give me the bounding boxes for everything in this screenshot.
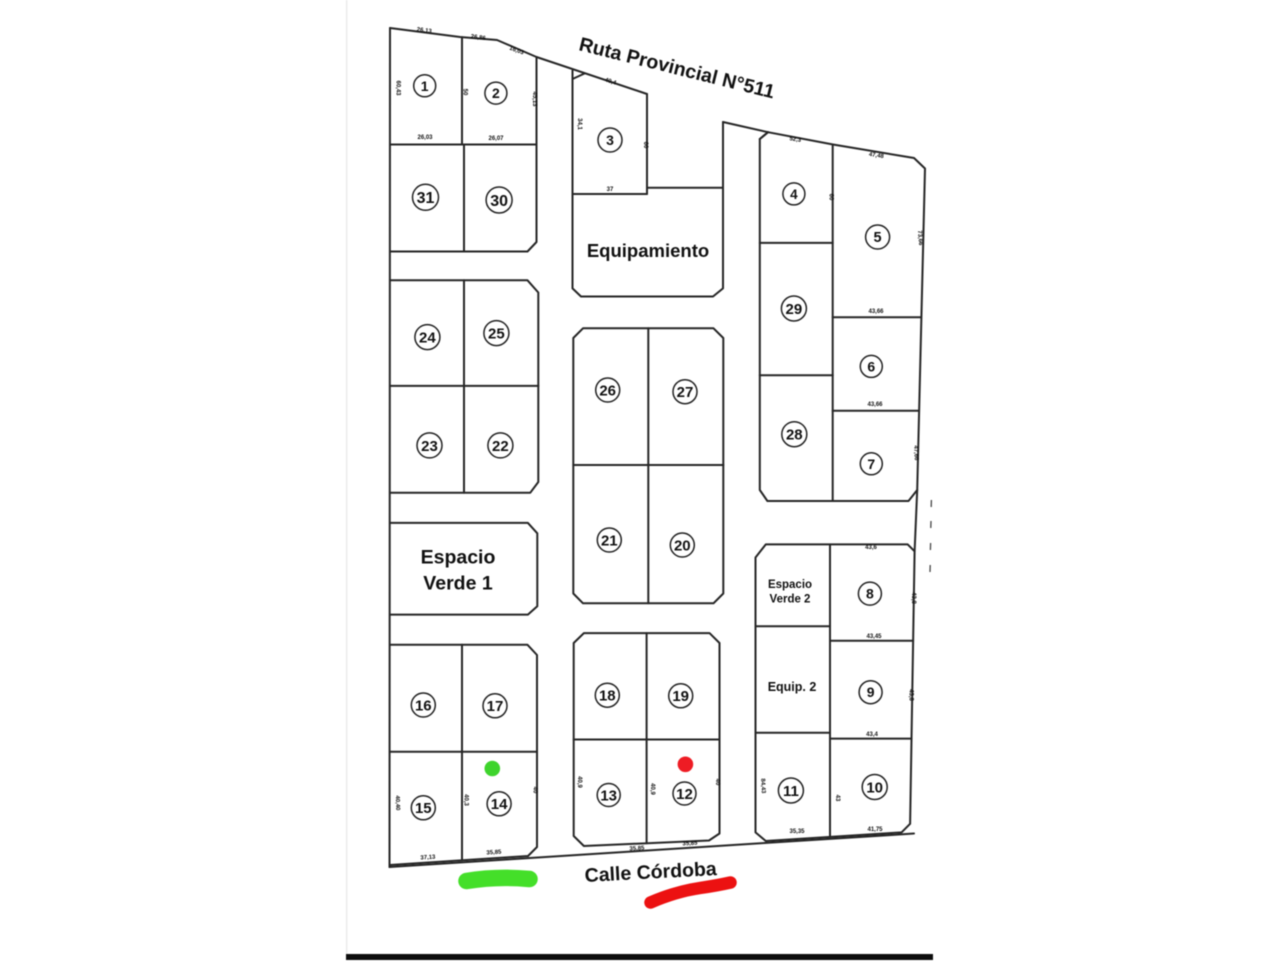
svg-text:60: 60 xyxy=(642,142,648,149)
svg-text:34,1: 34,1 xyxy=(576,118,582,130)
svg-text:8: 8 xyxy=(866,586,874,602)
svg-text:35,85: 35,85 xyxy=(486,849,502,856)
svg-text:47,66: 47,66 xyxy=(912,445,919,461)
svg-text:4: 4 xyxy=(790,187,798,202)
svg-text:40,40: 40,40 xyxy=(394,795,401,811)
svg-text:60,43: 60,43 xyxy=(395,80,401,96)
svg-text:40,9: 40,9 xyxy=(649,783,655,795)
svg-text:24: 24 xyxy=(419,330,436,347)
svg-text:43,8: 43,8 xyxy=(908,689,914,701)
svg-text:29: 29 xyxy=(786,301,803,318)
svg-text:6: 6 xyxy=(867,358,875,374)
svg-text:37: 37 xyxy=(607,187,614,193)
svg-text:26,03: 26,03 xyxy=(417,135,433,141)
svg-text:21: 21 xyxy=(601,532,618,549)
svg-text:50: 50 xyxy=(462,89,468,96)
svg-text:3: 3 xyxy=(606,132,614,148)
svg-text:5: 5 xyxy=(874,230,882,246)
svg-text:35,85: 35,85 xyxy=(629,846,645,853)
svg-text:35,35: 35,35 xyxy=(789,829,805,835)
svg-text:10: 10 xyxy=(866,779,883,796)
svg-text:60: 60 xyxy=(828,194,834,201)
svg-text:19: 19 xyxy=(672,688,689,705)
svg-text:Verde 1: Verde 1 xyxy=(423,573,493,595)
svg-text:7: 7 xyxy=(867,456,875,472)
svg-text:13: 13 xyxy=(600,787,617,804)
svg-text:12: 12 xyxy=(676,786,693,803)
svg-text:84,43: 84,43 xyxy=(759,778,766,794)
svg-text:40: 40 xyxy=(714,779,720,786)
svg-text:27: 27 xyxy=(677,384,694,401)
svg-text:43,66: 43,66 xyxy=(867,402,883,408)
svg-text:45,13: 45,13 xyxy=(531,91,537,107)
svg-text:11: 11 xyxy=(783,783,799,800)
svg-text:17: 17 xyxy=(487,698,504,715)
svg-text:22: 22 xyxy=(492,438,509,455)
svg-text:9: 9 xyxy=(867,684,875,700)
svg-text:18: 18 xyxy=(599,688,616,705)
svg-text:28: 28 xyxy=(786,427,803,444)
svg-text:43: 43 xyxy=(834,795,840,802)
svg-text:35,85: 35,85 xyxy=(682,841,698,848)
svg-text:30: 30 xyxy=(490,193,508,210)
svg-text:16: 16 xyxy=(415,697,432,714)
svg-text:Espacio: Espacio xyxy=(768,579,812,591)
svg-text:2: 2 xyxy=(492,85,500,101)
svg-text:43,6: 43,6 xyxy=(865,545,877,551)
svg-text:15: 15 xyxy=(415,800,432,817)
svg-text:26,07: 26,07 xyxy=(488,136,504,142)
svg-text:37,13: 37,13 xyxy=(420,854,436,861)
svg-text:40: 40 xyxy=(532,787,538,794)
svg-text:25: 25 xyxy=(488,326,505,343)
svg-text:43,45: 43,45 xyxy=(866,634,882,640)
svg-text:40,3: 40,3 xyxy=(463,794,469,806)
svg-text:40,9: 40,9 xyxy=(576,776,582,788)
svg-text:1: 1 xyxy=(421,78,429,94)
svg-text:14: 14 xyxy=(491,796,508,813)
svg-text:Verde 2: Verde 2 xyxy=(770,594,811,606)
svg-text:41,75: 41,75 xyxy=(867,827,883,833)
svg-text:Equip. 2: Equip. 2 xyxy=(768,680,817,694)
svg-text:20: 20 xyxy=(674,537,691,554)
svg-text:26: 26 xyxy=(599,382,616,399)
svg-text:23: 23 xyxy=(421,438,438,455)
svg-text:43,8: 43,8 xyxy=(910,592,916,604)
svg-text:31: 31 xyxy=(417,190,435,207)
svg-text:43,4: 43,4 xyxy=(866,732,878,738)
svg-text:Espacio: Espacio xyxy=(421,547,496,569)
svg-text:43,66: 43,66 xyxy=(868,309,884,315)
svg-text:Equipamiento: Equipamiento xyxy=(587,240,709,261)
